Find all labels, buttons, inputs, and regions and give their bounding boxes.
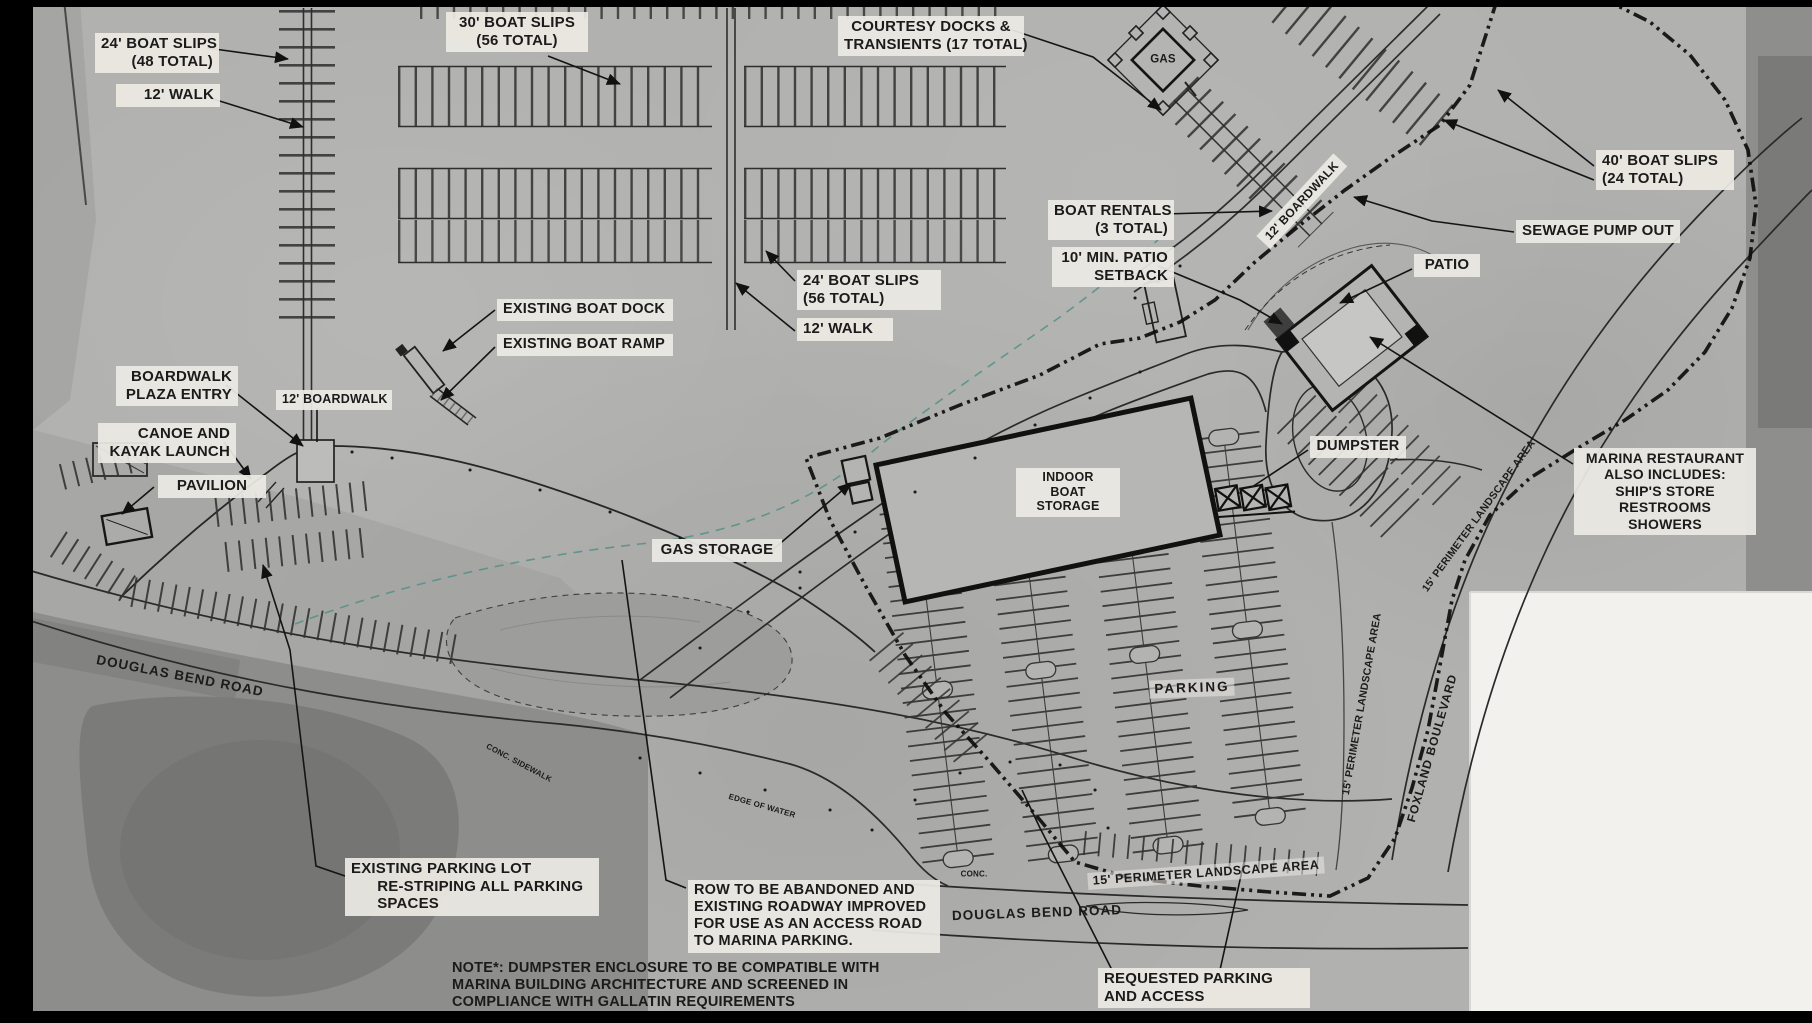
leader-canoe xyxy=(224,442,251,479)
leader-boat-slips-24-56 xyxy=(766,251,795,281)
site-plan-drawing xyxy=(0,0,1812,1023)
leader-boat-slips-30 xyxy=(548,56,620,84)
marina-restaurant-building xyxy=(1138,243,1452,410)
existing-dock-ramp xyxy=(258,339,476,508)
road-median-island xyxy=(1086,903,1248,915)
walk-12-spine xyxy=(727,8,735,330)
leader-dumpster xyxy=(1252,450,1308,487)
leader-existing-ramp xyxy=(441,347,495,400)
leader-marina-restaurant xyxy=(1370,337,1573,464)
pavilion-building xyxy=(102,508,152,545)
letterbox-top xyxy=(0,0,1812,7)
leader-requested-a xyxy=(1022,790,1112,970)
leader-courtesy-docks xyxy=(1012,30,1161,110)
marina-site-plan: 24' BOAT SLIPS(48 TOTAL)12' WALK30' BOAT… xyxy=(0,0,1812,1023)
sheet-white-corner xyxy=(1470,592,1812,1013)
courtesy-dock-fingers xyxy=(1180,94,1316,230)
leader-requested-b xyxy=(1220,862,1244,970)
douglas-bend-road-realigned-south xyxy=(872,930,1468,949)
leader-boardwalk-plaza xyxy=(226,385,303,446)
boardwalk-12-spine xyxy=(304,8,312,440)
boat-slips-40-fingers xyxy=(1288,2,1440,128)
leader-walk-12-mid xyxy=(736,283,795,331)
letterbox-bottom xyxy=(0,1011,1812,1023)
indoor-boat-storage-building xyxy=(876,398,1220,602)
letterbox-left xyxy=(0,0,33,1023)
douglas-bend-road-realigned-north xyxy=(908,884,1468,905)
leader-boat-slips-40-a xyxy=(1498,90,1594,166)
dumpster-pads xyxy=(1212,476,1295,525)
leader-boat-slips-40-b xyxy=(1444,120,1594,180)
leader-existing-dock xyxy=(443,310,495,351)
leader-boat-slips-24-48 xyxy=(207,48,288,59)
docks xyxy=(304,2,1441,440)
leader-sewage xyxy=(1354,197,1514,232)
gas-storage-structure xyxy=(842,456,875,504)
